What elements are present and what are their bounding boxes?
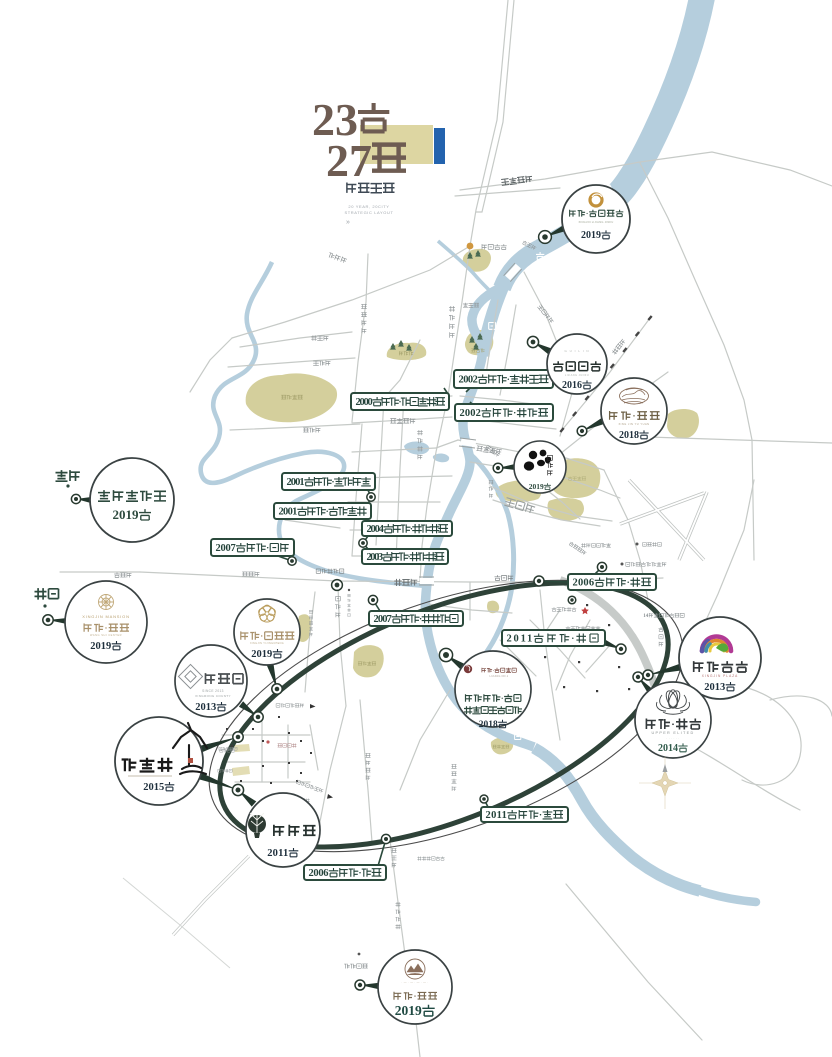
svg-text:· · · · · ·: · · · · · · (666, 737, 679, 740)
svg-text:2007: 2007 (216, 543, 236, 554)
svg-text:LIJIANG NO.1: LIJIANG NO.1 (490, 675, 509, 678)
svg-text:2006: 2006 (573, 578, 595, 589)
svg-text:2014: 2014 (658, 743, 678, 754)
svg-text:»: » (346, 219, 350, 226)
svg-text:2013: 2013 (704, 682, 725, 693)
svg-text:SINCE 2013: SINCE 2013 (202, 689, 224, 693)
svg-text:2000: 2000 (356, 397, 373, 408)
svg-text:2001: 2001 (287, 477, 305, 488)
svg-text:2015: 2015 (143, 782, 164, 793)
svg-text:2003: 2003 (367, 552, 384, 563)
svg-text:2018: 2018 (619, 430, 639, 441)
svg-text:2011: 2011 (486, 810, 507, 821)
svg-text:2002: 2002 (460, 408, 481, 419)
svg-text:STRATEGIC LAYOUT: STRATEGIC LAYOUT (344, 210, 393, 215)
svg-text:XINGJIN MANSION: XINGJIN MANSION (82, 614, 130, 619)
svg-text:2019: 2019 (90, 641, 111, 652)
svg-text:XINGJIN LIJIANG JINFU: XINGJIN LIJIANG JINFU (578, 220, 613, 224)
svg-text:2016: 2016 (562, 380, 582, 391)
svg-text:2013: 2013 (195, 702, 216, 713)
svg-text:20 YEAR, 20CITY: 20 YEAR, 20CITY (348, 204, 389, 209)
svg-text:2019: 2019 (581, 230, 601, 241)
svg-text:XINGJIN YIJINGCHENG: XINGJIN YIJINGCHENG (250, 642, 284, 645)
svg-text:2002: 2002 (459, 375, 478, 386)
svg-text:2001: 2001 (279, 507, 298, 518)
svg-text:G U I L I N: G U I L I N (564, 349, 589, 353)
svg-text:WANG SHI CENTER: WANG SHI CENTER (90, 633, 122, 637)
svg-text:2019: 2019 (529, 482, 544, 491)
svg-text:2006: 2006 (309, 868, 329, 879)
svg-text:XINGJIN PLAZA: XINGJIN PLAZA (702, 674, 739, 678)
svg-text:2019: 2019 (251, 649, 272, 660)
svg-text:2011: 2011 (267, 848, 288, 859)
svg-text:XING JIN YU YUAN: XING JIN YU YUAN (618, 422, 649, 426)
svg-text:14: 14 (643, 613, 649, 619)
svg-text:27: 27 (326, 135, 372, 186)
svg-text:LIJIANG JUNFU: LIJIANG JUNFU (565, 373, 589, 377)
svg-text:· — · — · — · — ·: · — · — · — · — · (401, 980, 428, 984)
svg-text:2019: 2019 (113, 507, 140, 522)
svg-text:2004: 2004 (367, 524, 385, 535)
svg-text:2018: 2018 (479, 720, 498, 730)
svg-text:UPPER ELITED: UPPER ELITED (651, 731, 694, 735)
svg-text:2007: 2007 (374, 614, 392, 625)
svg-text:2019: 2019 (395, 1003, 422, 1018)
svg-text:XINGRONG COUNTY: XINGRONG COUNTY (195, 694, 231, 698)
